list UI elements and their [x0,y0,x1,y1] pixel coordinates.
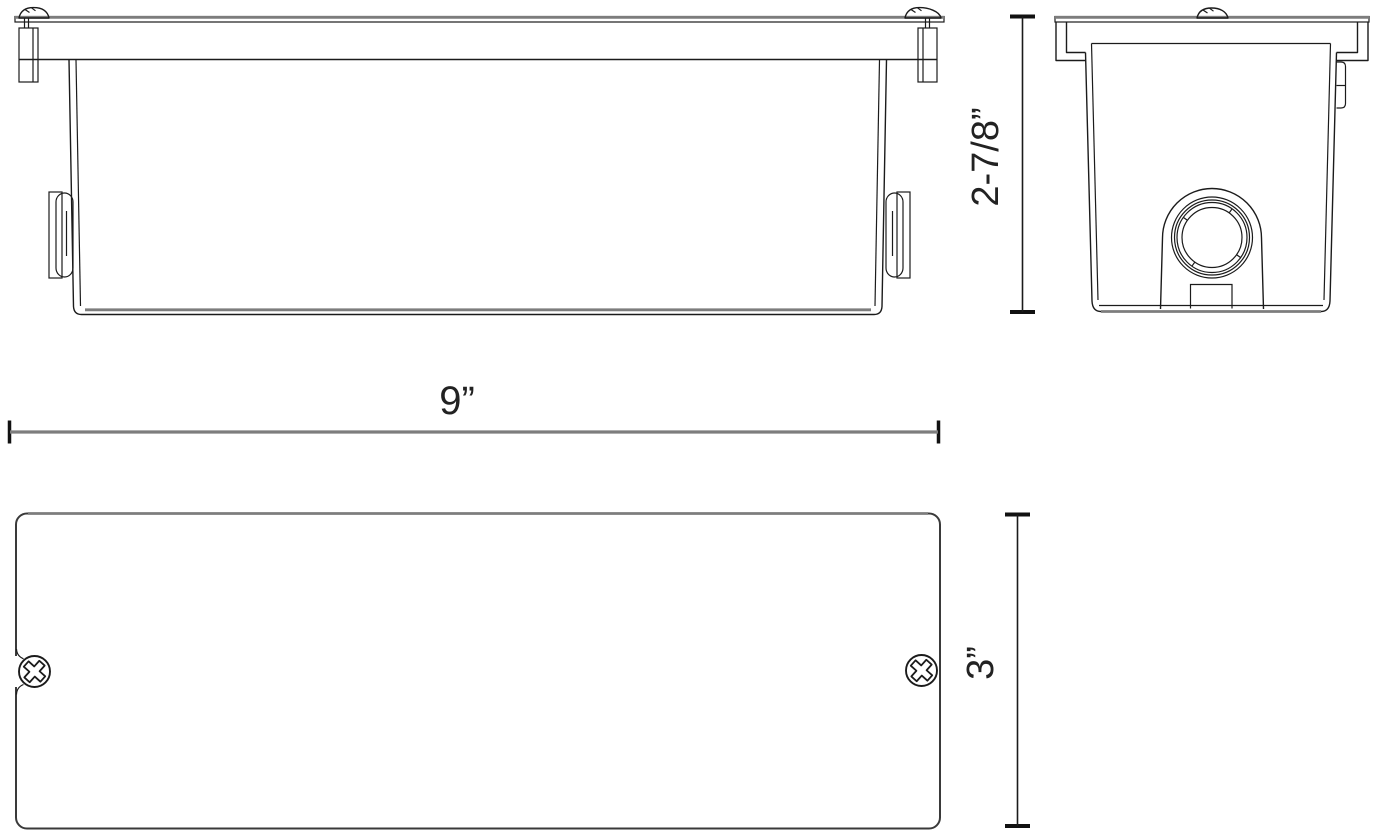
drawing-sheet: 2-7/8” 9” 3” [0,0,1387,840]
sheet-background [0,0,1387,840]
cover-screw-right [906,655,938,687]
technical-drawing-canvas: 2-7/8” 9” 3” [0,0,1387,840]
dimension-height-label: 2-7/8” [965,107,1007,206]
dimension-depth-label: 3” [960,646,1002,680]
cover-screw-left [19,656,51,688]
dimension-width-label: 9” [439,379,475,423]
